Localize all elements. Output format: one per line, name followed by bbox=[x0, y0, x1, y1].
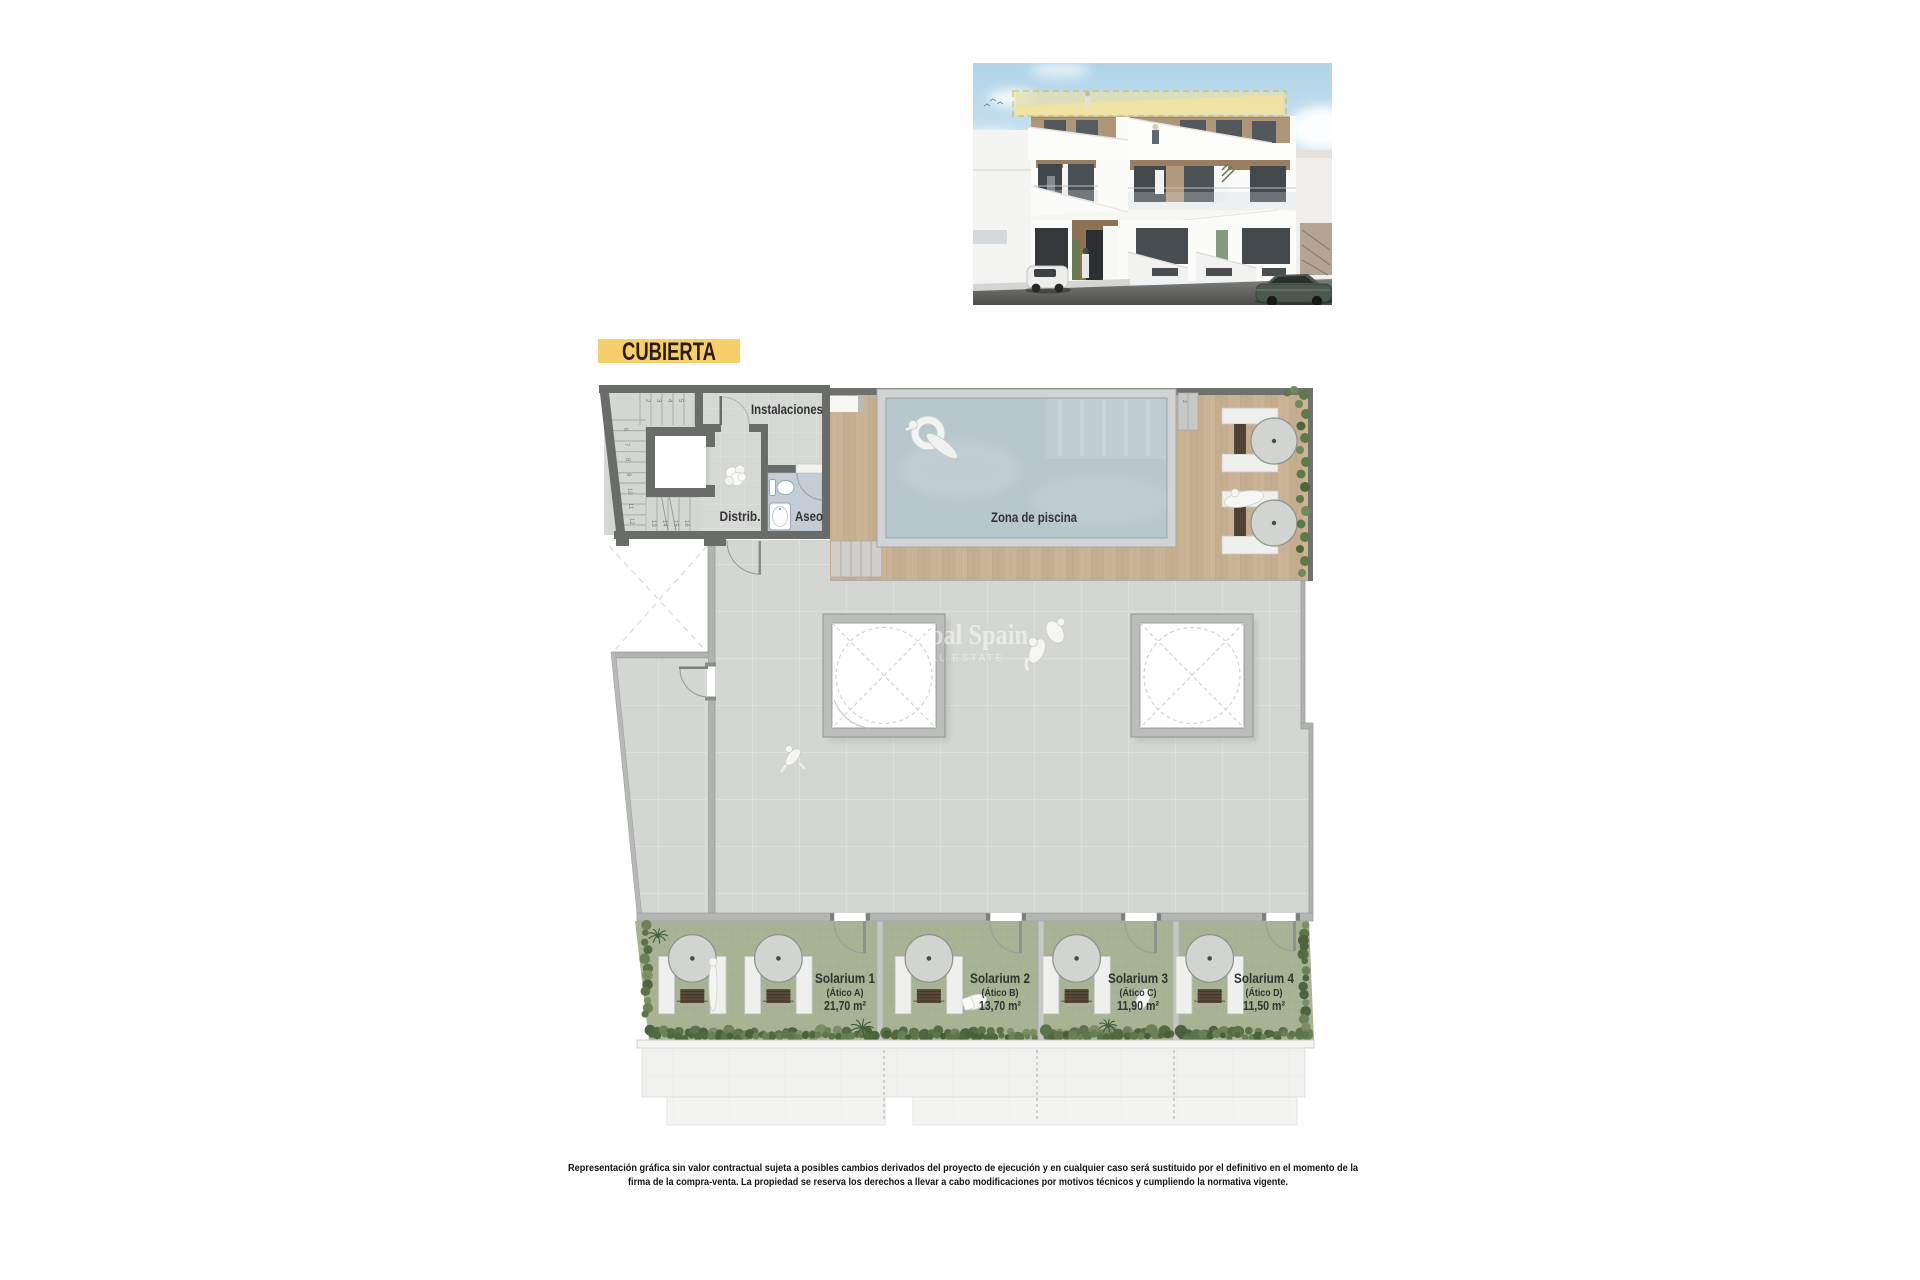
svg-text:16: 16 bbox=[683, 520, 689, 527]
svg-text:11,50 m²: 11,50 m² bbox=[1243, 999, 1285, 1013]
svg-text:Instalaciones: Instalaciones bbox=[751, 401, 823, 417]
svg-text:(Ático B): (Ático B) bbox=[982, 986, 1019, 999]
svg-text:15: 15 bbox=[672, 520, 678, 527]
svg-text:Zona de piscina: Zona de piscina bbox=[991, 509, 1077, 525]
svg-text:CUBIERTA: CUBIERTA bbox=[622, 338, 716, 366]
svg-text:14: 14 bbox=[661, 520, 667, 527]
svg-text:10: 10 bbox=[626, 488, 632, 495]
svg-text:Solarium 2: Solarium 2 bbox=[970, 970, 1030, 986]
svg-text:11,90 m²: 11,90 m² bbox=[1117, 999, 1159, 1013]
svg-text:Distrib.: Distrib. bbox=[720, 508, 761, 524]
svg-text:11: 11 bbox=[627, 503, 633, 510]
svg-text:(Ático C): (Ático C) bbox=[1120, 986, 1157, 999]
svg-text:Global Spain: Global Spain bbox=[892, 620, 1028, 651]
svg-text:13: 13 bbox=[650, 520, 656, 527]
svg-text:21,70 m²: 21,70 m² bbox=[824, 999, 866, 1013]
svg-text:(Ático D): (Ático D) bbox=[1246, 986, 1283, 999]
svg-text:firma de la compra-venta. La p: firma de la compra-venta. La propiedad s… bbox=[628, 1176, 1288, 1188]
svg-text:(Ático A): (Ático A) bbox=[827, 986, 864, 999]
svg-text:Representación gráfica sin val: Representación gráfica sin valor contrac… bbox=[568, 1162, 1358, 1174]
svg-text:13,70 m²: 13,70 m² bbox=[979, 999, 1021, 1013]
svg-text:2: 2 bbox=[1181, 400, 1187, 403]
svg-text:Solarium 3: Solarium 3 bbox=[1108, 970, 1168, 986]
svg-text:Solarium 4: Solarium 4 bbox=[1234, 970, 1294, 986]
svg-text:Solarium 1: Solarium 1 bbox=[815, 970, 875, 986]
svg-text:12: 12 bbox=[628, 518, 634, 525]
svg-text:Aseo: Aseo bbox=[795, 508, 823, 524]
svg-text:REAL ESTATE: REAL ESTATE bbox=[911, 653, 1004, 664]
